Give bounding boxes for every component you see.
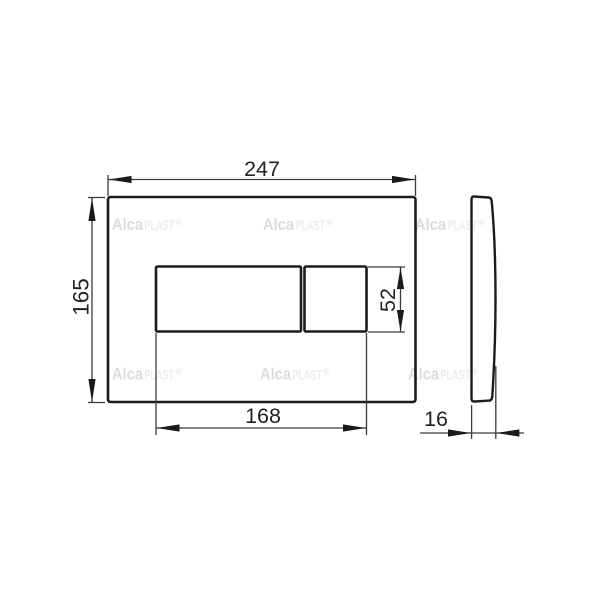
svg-text:PLAST: PLAST [145, 366, 175, 382]
svg-text:®: ® [324, 367, 330, 376]
svg-text:PLAST: PLAST [448, 217, 478, 233]
svg-text:Alca: Alca [415, 216, 447, 234]
svg-text:®: ® [176, 367, 182, 376]
svg-text:Alca: Alca [260, 365, 292, 383]
svg-text:®: ® [176, 218, 182, 227]
svg-text:247: 247 [244, 157, 280, 181]
svg-text:Alca: Alca [263, 216, 295, 234]
svg-text:PLAST: PLAST [441, 366, 471, 382]
svg-text:168: 168 [245, 404, 281, 428]
svg-text:PLAST: PLAST [296, 217, 326, 233]
svg-text:PLAST: PLAST [293, 366, 323, 382]
svg-text:®: ® [327, 218, 333, 227]
svg-text:16: 16 [424, 407, 448, 431]
svg-text:Alca: Alca [112, 216, 144, 234]
svg-text:Alca: Alca [408, 365, 440, 383]
svg-text:52: 52 [376, 288, 400, 312]
svg-text:Alca: Alca [112, 365, 144, 383]
svg-text:®: ® [479, 218, 485, 227]
svg-text:165: 165 [69, 278, 94, 316]
svg-text:PLAST: PLAST [145, 217, 175, 233]
